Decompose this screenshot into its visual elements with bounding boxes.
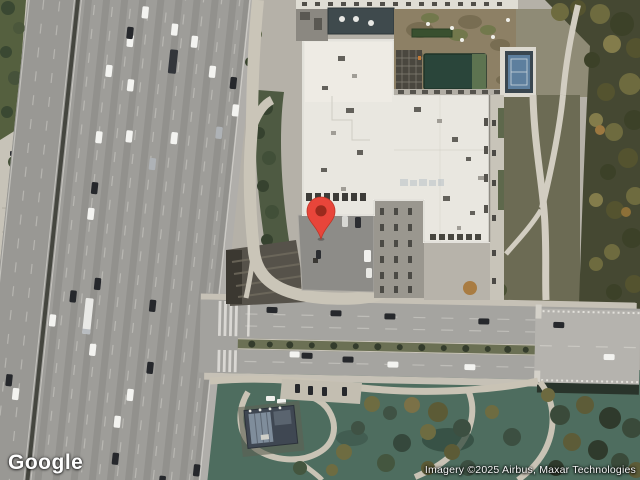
map-marker-icon[interactable] (304, 195, 338, 241)
google-logo[interactable]: Google (8, 451, 83, 475)
marker-body (307, 197, 335, 239)
marker-dot (315, 205, 326, 216)
pergola (396, 50, 422, 90)
sports-court (500, 47, 536, 97)
planter (412, 29, 452, 37)
east-walkway (490, 95, 505, 300)
swimming-pool (424, 54, 486, 89)
google-maps-satellite-view[interactable]: Google Imagery ©2025 Airbus, Maxar Techn… (0, 0, 640, 480)
park-pavilion (238, 401, 305, 457)
imagery-attribution: Imagery ©2025 Airbus, Maxar Technologies (425, 464, 636, 476)
colonnade (374, 200, 424, 298)
courtyard (394, 9, 516, 95)
bridge (534, 305, 640, 395)
